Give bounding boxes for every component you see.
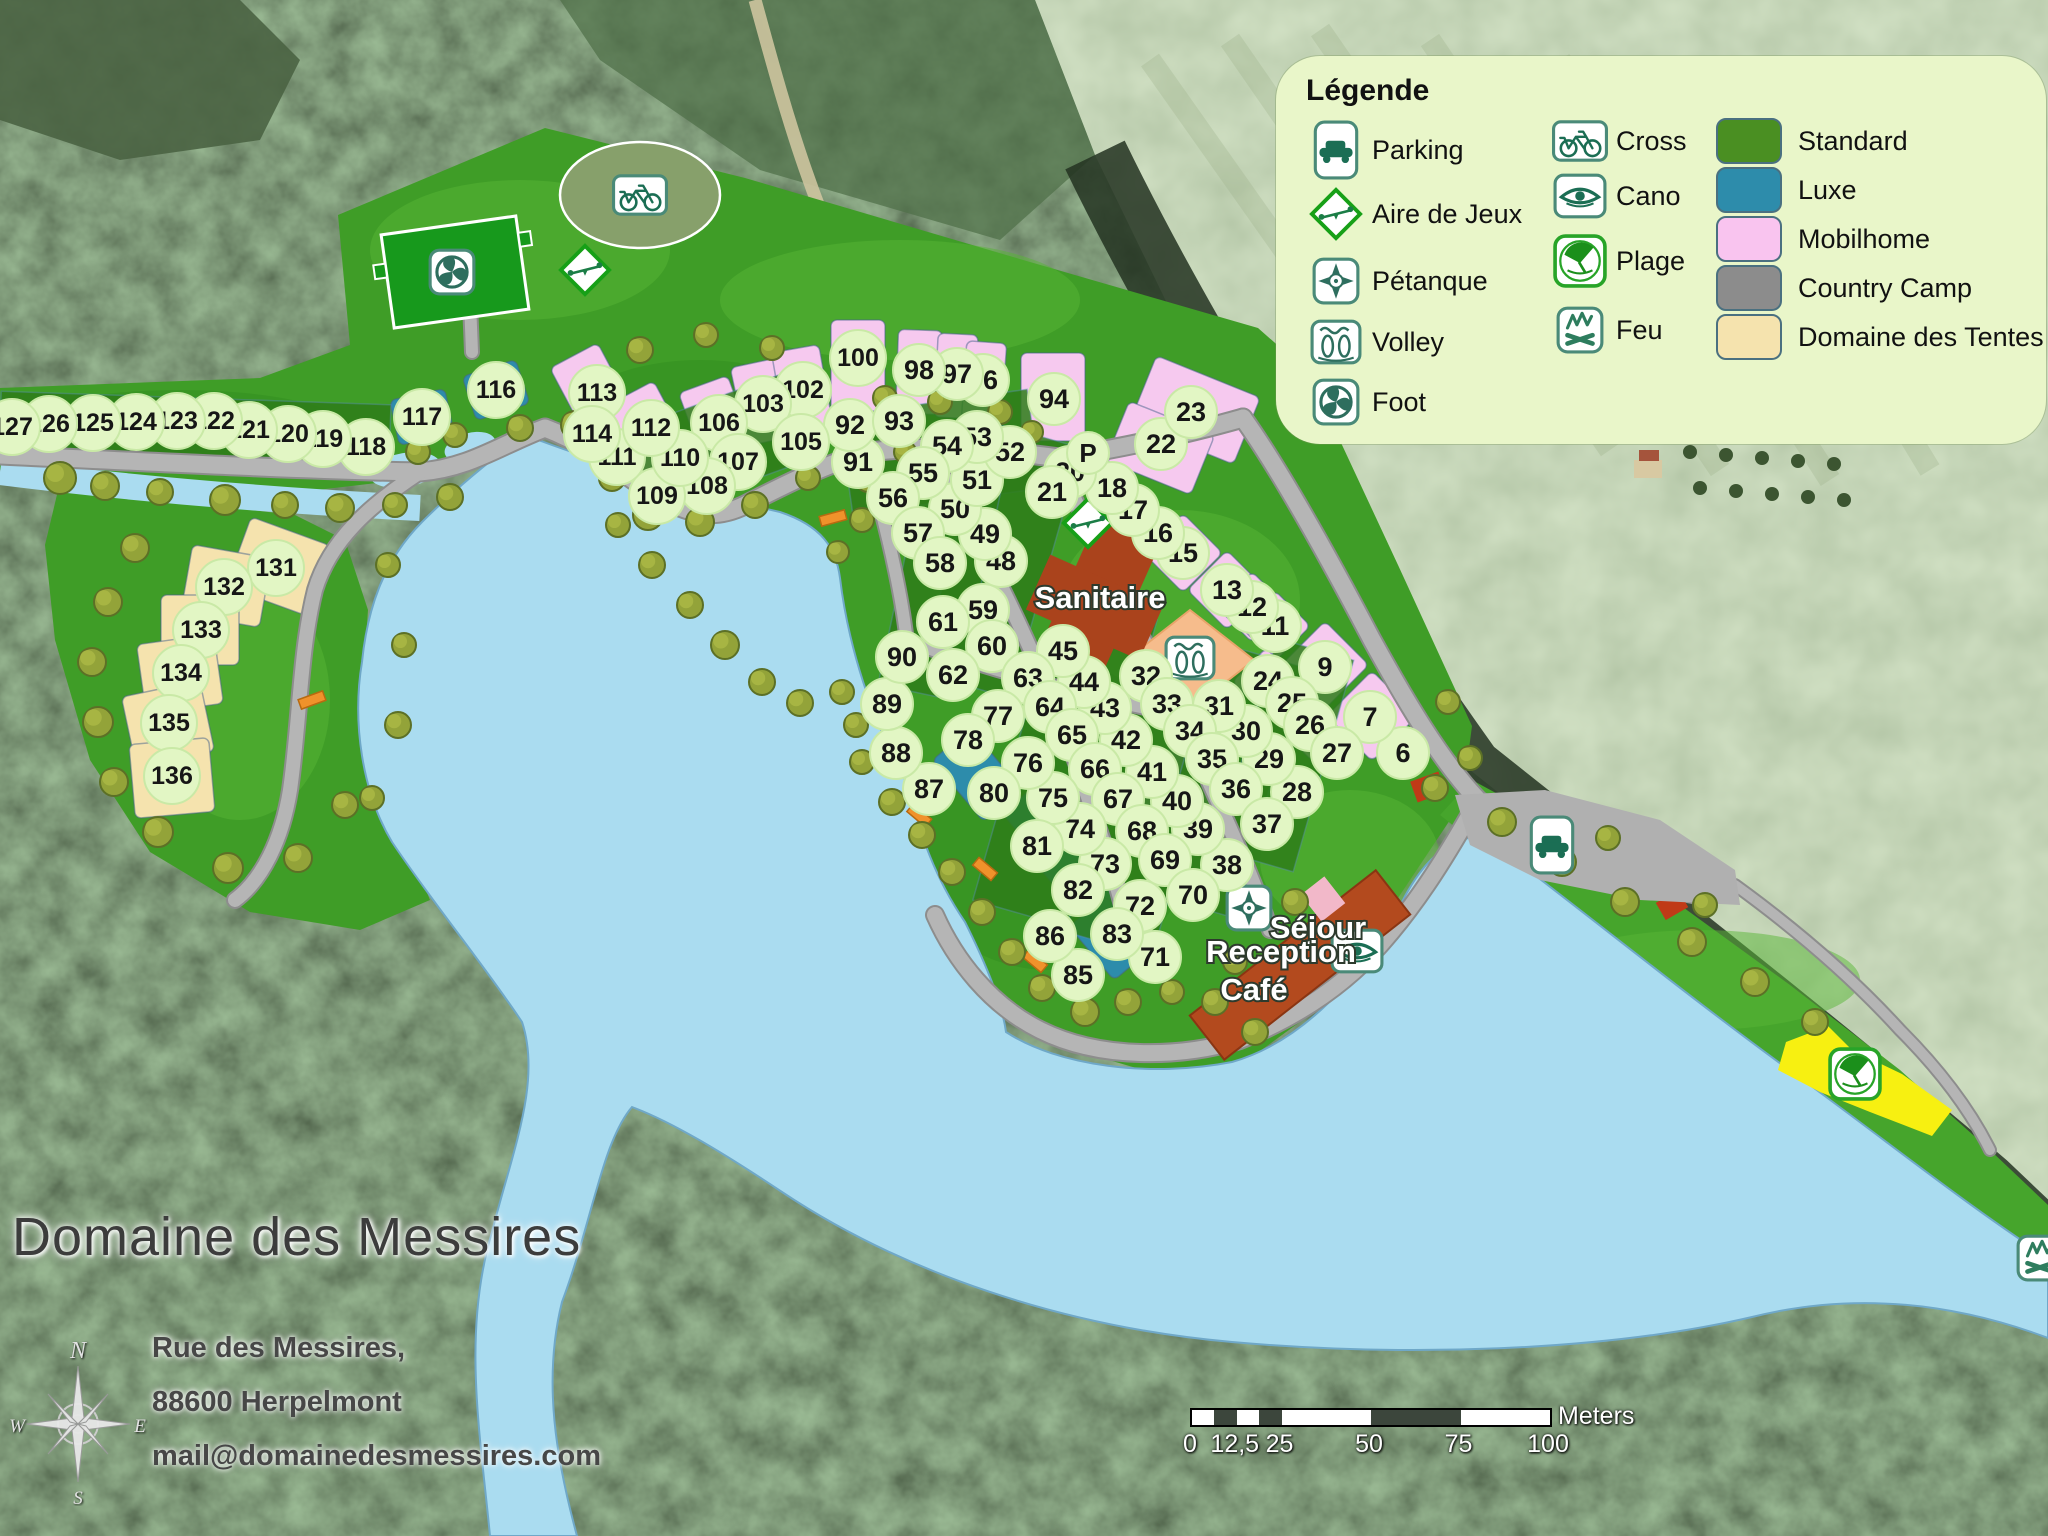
scale-bar-unit: Meters	[1558, 1402, 1634, 1431]
legend-item-feu: Feu	[1544, 302, 1663, 358]
pitch-61: 61	[917, 596, 969, 648]
svg-text:114: 114	[572, 420, 612, 448]
tree	[999, 939, 1025, 965]
pitch-80: 80	[968, 767, 1020, 819]
tree	[909, 822, 935, 848]
svg-text:62: 62	[938, 660, 968, 690]
compass-s: S	[73, 1488, 83, 1506]
tree	[326, 494, 354, 522]
tree	[879, 789, 905, 815]
svg-text:133: 133	[180, 616, 222, 644]
pitch-94: 94	[1028, 373, 1080, 425]
pitch-93: 93	[873, 395, 925, 447]
tree	[1488, 808, 1516, 836]
pitch-90: 90	[876, 631, 928, 683]
svg-text:6: 6	[1395, 738, 1410, 768]
svg-text:131: 131	[255, 554, 297, 582]
tree	[606, 513, 630, 537]
tree	[210, 485, 240, 515]
scale-tick-0: 0	[1183, 1430, 1197, 1459]
svg-text:13: 13	[1212, 575, 1242, 605]
pitch-117: 117	[394, 389, 450, 445]
pitch-131: 131	[248, 540, 304, 596]
legend-title: Légende	[1306, 74, 1429, 108]
compass-rose: N E S W	[8, 1336, 148, 1506]
tree	[939, 859, 965, 885]
tree	[742, 492, 768, 518]
svg-text:38: 38	[1212, 850, 1242, 880]
legend-item-plage: Plage	[1544, 233, 1685, 289]
tree	[1029, 975, 1055, 1001]
campground-map: { "legend": { "title": "Légende", "activ…	[0, 0, 2048, 1536]
legend-pitch-type-country-camp: Country Camp	[1716, 260, 1972, 316]
tree	[1802, 1009, 1828, 1035]
tree	[787, 690, 813, 716]
marker-P: P	[1067, 432, 1109, 474]
color-swatch	[1716, 216, 1782, 262]
svg-text:76: 76	[1013, 748, 1043, 778]
legend-pitch-type-mobilhome: Mobilhome	[1716, 211, 1930, 267]
foot-icon	[1311, 377, 1361, 427]
volley-icon	[1310, 319, 1362, 365]
pitch-37: 37	[1241, 798, 1293, 850]
site-title: Domaine des Messires	[12, 1206, 581, 1268]
svg-text:23: 23	[1176, 397, 1206, 427]
svg-text:125: 125	[72, 409, 114, 437]
pitch-58: 58	[914, 537, 966, 589]
compass-e: E	[133, 1416, 146, 1437]
tree	[627, 337, 653, 363]
svg-text:136: 136	[151, 762, 193, 790]
svg-text:134: 134	[160, 659, 202, 687]
legend-item-foot: Foot	[1300, 374, 1426, 430]
pitch-82: 82	[1052, 864, 1104, 916]
svg-text:37: 37	[1252, 809, 1282, 839]
pitch-23: 23	[1165, 386, 1217, 438]
pitch-78: 78	[942, 714, 994, 766]
legend-item-playground: Aire de Jeux	[1300, 186, 1522, 242]
tree	[1693, 893, 1717, 917]
legend-item-cross: Cross	[1544, 113, 1687, 169]
tree	[969, 899, 995, 925]
svg-text:86: 86	[1035, 921, 1065, 951]
svg-text:100: 100	[837, 344, 879, 372]
address-line-2: 88600 Herpelmont	[152, 1386, 712, 1419]
svg-text:132: 132	[203, 573, 245, 601]
svg-text:106: 106	[698, 409, 740, 437]
tree	[143, 817, 173, 847]
scale-tick-100: 100	[1527, 1430, 1569, 1459]
svg-text:27: 27	[1322, 738, 1352, 768]
pitch-86: 86	[1024, 910, 1076, 962]
svg-text:83: 83	[1102, 919, 1132, 949]
pitch-62: 62	[927, 649, 979, 701]
pitch-134: 134	[153, 645, 209, 701]
svg-text:117: 117	[402, 403, 442, 431]
svg-text:88: 88	[881, 738, 911, 768]
tree	[711, 631, 739, 659]
pitch-112: 112	[623, 400, 679, 456]
svg-text:36: 36	[1221, 774, 1251, 804]
svg-text:P: P	[1079, 438, 1096, 468]
pitch-100: 100	[830, 330, 886, 386]
legend-item-parking: Parking	[1300, 122, 1464, 178]
svg-text:9: 9	[1317, 652, 1332, 682]
tree	[332, 792, 358, 818]
petanque-icon	[1311, 256, 1361, 306]
pitch-135: 135	[141, 695, 197, 751]
compass-w: W	[9, 1416, 27, 1437]
svg-text:92: 92	[835, 410, 865, 440]
pitch-21: 21	[1026, 466, 1078, 518]
address-line-3: mail@domainedesmessires.com	[152, 1440, 712, 1473]
scale-bar-ticks: 012,5255075100	[1190, 1430, 1548, 1458]
svg-text:75: 75	[1038, 783, 1068, 813]
pitch-116: 116	[468, 362, 524, 418]
cano-icon	[1553, 173, 1607, 219]
compass-n: N	[69, 1338, 88, 1364]
svg-text:85: 85	[1063, 960, 1093, 990]
legend-item-petanque: Pétanque	[1300, 253, 1488, 309]
svg-text:82: 82	[1063, 875, 1093, 905]
legend-panel: Légende ParkingAire de JeuxPétanqueVolle…	[1276, 56, 2046, 444]
tree	[360, 786, 384, 810]
tree	[121, 534, 149, 562]
tree	[749, 669, 775, 695]
svg-text:94: 94	[1039, 384, 1069, 414]
tree	[1596, 826, 1620, 850]
svg-text:87: 87	[914, 774, 944, 804]
tree	[1115, 989, 1141, 1015]
tree	[376, 553, 400, 577]
scale-tick-25: 25	[1266, 1430, 1294, 1459]
tree	[94, 588, 122, 616]
svg-text:135: 135	[148, 709, 190, 737]
svg-text:70: 70	[1178, 880, 1208, 910]
pitch-98: 98	[893, 344, 945, 396]
svg-text:80: 80	[979, 778, 1009, 808]
feu-icon	[1555, 305, 1605, 355]
tree	[284, 844, 312, 872]
tree	[385, 712, 411, 738]
tree	[83, 707, 113, 737]
tree	[1160, 980, 1184, 1004]
parking-icon	[1313, 120, 1359, 180]
tree	[437, 484, 463, 510]
legend-pitch-type-standard: Standard	[1716, 113, 1908, 169]
foot-icon	[430, 250, 474, 294]
svg-text:109: 109	[636, 482, 678, 510]
pitch-81: 81	[1011, 820, 1063, 872]
address-line-1: Rue des Messires,	[152, 1332, 712, 1365]
tree	[100, 768, 128, 796]
tree	[1458, 746, 1482, 770]
svg-text:71: 71	[1140, 942, 1170, 972]
plage-icon	[1553, 234, 1607, 288]
petanque-icon	[1227, 886, 1271, 930]
svg-text:113: 113	[577, 379, 617, 407]
svg-text:103: 103	[742, 390, 784, 418]
tree	[1611, 888, 1639, 916]
scale-tick-75: 75	[1445, 1430, 1473, 1459]
legend-item-volley: Volley	[1300, 314, 1444, 370]
color-swatch	[1716, 118, 1782, 164]
svg-text:81: 81	[1022, 831, 1052, 861]
pitch-83: 83	[1091, 908, 1143, 960]
volley-icon	[1166, 637, 1214, 679]
tree	[639, 552, 665, 578]
svg-text:56: 56	[878, 483, 908, 513]
legend-item-cano: Cano	[1544, 168, 1681, 224]
svg-text:7: 7	[1362, 702, 1377, 732]
tree	[91, 472, 119, 500]
tree	[677, 592, 703, 618]
scale-tick-12,5: 12,5	[1210, 1430, 1259, 1459]
svg-text:90: 90	[887, 642, 917, 672]
svg-text:98: 98	[904, 355, 934, 385]
tree	[147, 479, 173, 505]
tree	[827, 541, 849, 563]
tree	[760, 336, 784, 360]
tree	[1678, 928, 1706, 956]
tree	[1242, 1019, 1268, 1045]
svg-text:61: 61	[928, 607, 958, 637]
tree	[383, 493, 407, 517]
svg-text:58: 58	[925, 548, 955, 578]
tree	[78, 648, 106, 676]
svg-text:89: 89	[872, 689, 902, 719]
tree	[1741, 968, 1769, 996]
svg-text:97: 97	[942, 359, 972, 389]
svg-text:105: 105	[780, 428, 822, 456]
tree	[1071, 998, 1099, 1026]
svg-text:45: 45	[1048, 636, 1078, 666]
svg-text:22: 22	[1146, 429, 1176, 459]
svg-text:127: 127	[0, 413, 33, 441]
svg-text:18: 18	[1097, 473, 1127, 503]
tree	[392, 633, 416, 657]
svg-text:116: 116	[476, 376, 516, 404]
tree	[272, 492, 298, 518]
parking-icon	[1531, 817, 1572, 873]
tree	[44, 462, 76, 494]
feu-icon	[2018, 1236, 2048, 1280]
map-label: Café	[1220, 972, 1287, 1007]
tree	[507, 415, 533, 441]
tree	[1422, 775, 1448, 801]
svg-text:60: 60	[977, 631, 1007, 661]
pitch-136: 136	[144, 748, 200, 804]
pitch-92: 92	[824, 399, 876, 451]
svg-text:28: 28	[1282, 777, 1312, 807]
cross-icon	[1552, 120, 1608, 162]
color-swatch	[1716, 167, 1782, 213]
svg-text:78: 78	[953, 725, 983, 755]
color-swatch	[1716, 265, 1782, 311]
svg-text:69: 69	[1150, 845, 1180, 875]
plage-icon	[1830, 1049, 1880, 1099]
map-label: Sanitaire	[1035, 580, 1166, 615]
svg-text:112: 112	[631, 414, 671, 442]
scale-bar	[1190, 1408, 1552, 1427]
tree	[1436, 690, 1460, 714]
tree	[213, 853, 243, 883]
cross-icon	[614, 176, 667, 214]
tree	[694, 323, 718, 347]
legend-pitch-type-luxe: Luxe	[1716, 162, 1857, 218]
pitch-105: 105	[773, 414, 829, 470]
pitch-88: 88	[870, 727, 922, 779]
svg-text:51: 51	[962, 465, 992, 495]
pitch-89: 89	[861, 678, 913, 730]
svg-text:93: 93	[884, 406, 914, 436]
color-swatch	[1716, 314, 1782, 360]
svg-text:21: 21	[1037, 477, 1067, 507]
playground-icon	[1309, 187, 1363, 241]
tree	[830, 680, 854, 704]
pitch-70: 70	[1167, 869, 1219, 921]
pitch-13: 13	[1201, 564, 1253, 616]
scale-tick-50: 50	[1355, 1430, 1383, 1459]
legend-pitch-type-domaine-des-tentes: Domaine des Tentes	[1716, 309, 2044, 365]
map-label: Reception	[1206, 934, 1356, 969]
pitch-27: 27	[1311, 727, 1363, 779]
pitch-114: 114	[564, 406, 620, 462]
